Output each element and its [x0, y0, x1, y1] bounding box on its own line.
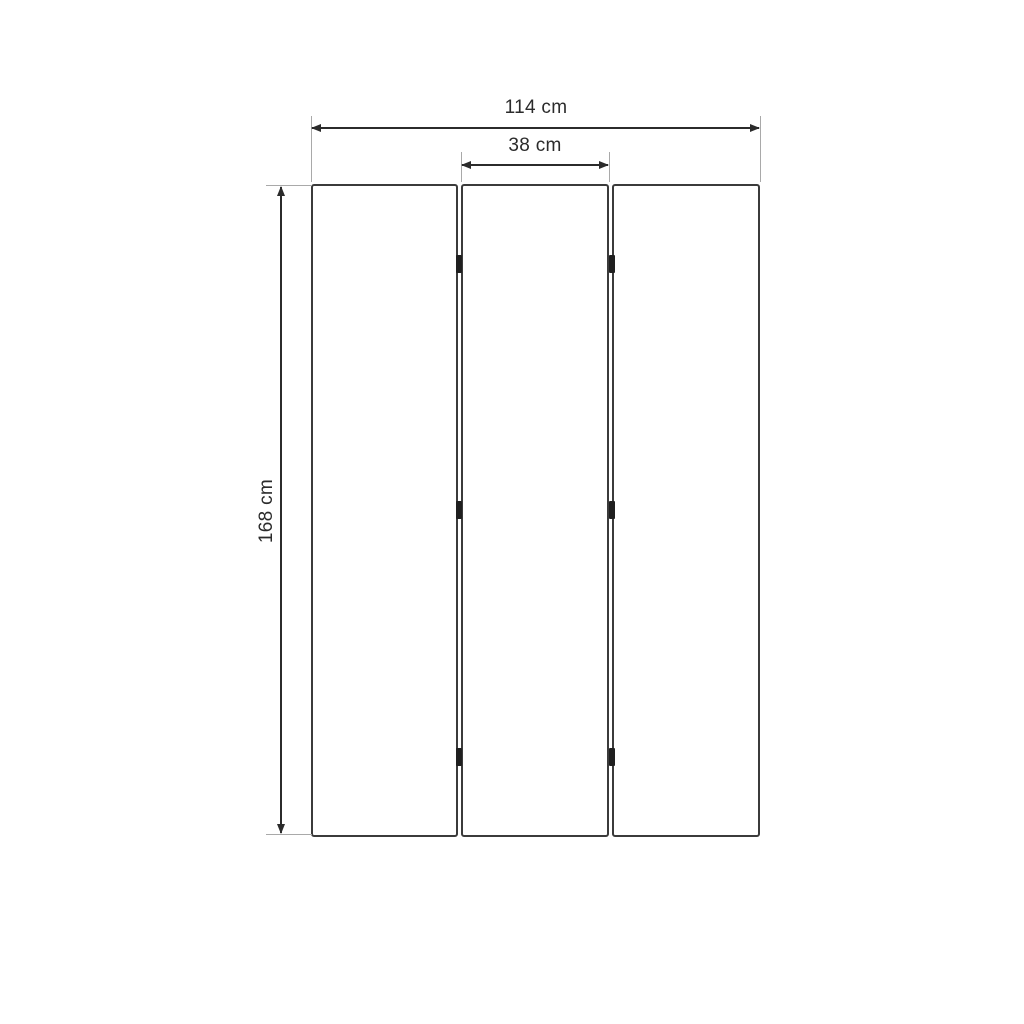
- dimension-line-panel-width: [462, 164, 608, 166]
- extension-line-panel-width-right: [609, 152, 610, 182]
- dimension-line-total-width: [312, 127, 759, 129]
- hinge-icon: [456, 255, 462, 273]
- dimension-line-height: [280, 187, 282, 833]
- hinge-icon: [609, 748, 615, 766]
- extension-line-total-width-right: [760, 116, 761, 182]
- hinge-icon: [456, 748, 462, 766]
- hinge-icon: [609, 501, 615, 519]
- panel-right: [612, 184, 760, 837]
- total-width-label: 114 cm: [312, 97, 760, 119]
- hinge-icon: [456, 501, 462, 519]
- dimension-diagram: 114 cm 38 cm 168 cm: [0, 0, 1024, 1024]
- extension-line-height-top: [266, 185, 312, 186]
- extension-line-height-bottom: [266, 834, 312, 835]
- panel-left: [311, 184, 458, 837]
- hinge-icon: [609, 255, 615, 273]
- height-label: 168 cm: [256, 431, 278, 591]
- panel-middle: [461, 184, 609, 837]
- panel-width-label: 38 cm: [461, 135, 609, 157]
